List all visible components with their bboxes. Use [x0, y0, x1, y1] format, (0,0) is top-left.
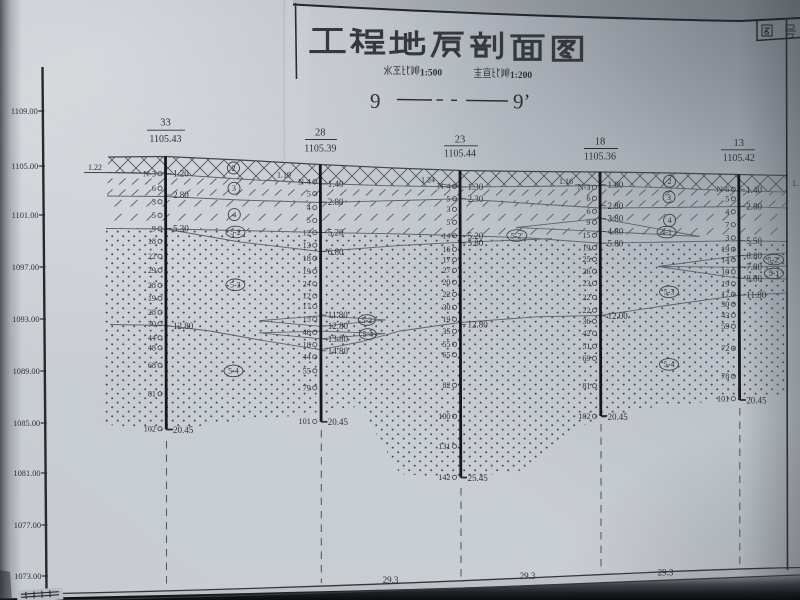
svg-text:5-3: 5-3 [664, 288, 675, 297]
svg-text:1.30: 1.30 [468, 182, 484, 192]
svg-text:28: 28 [148, 281, 156, 290]
svg-text:30: 30 [442, 303, 450, 312]
svg-text:26: 26 [582, 267, 590, 276]
svg-text:4.80: 4.80 [608, 227, 624, 237]
svg-text:9: 9 [370, 89, 381, 113]
svg-text:1.40: 1.40 [746, 185, 762, 195]
svg-text:27: 27 [442, 266, 450, 275]
svg-text:1.20: 1.20 [173, 169, 189, 179]
svg-text:5.80: 5.80 [468, 238, 484, 248]
svg-text:18: 18 [303, 340, 311, 349]
svg-text:12.00: 12.00 [608, 311, 629, 321]
svg-text:22: 22 [148, 252, 156, 261]
svg-text:78: 78 [721, 372, 729, 381]
svg-text:9’: 9’ [513, 90, 531, 114]
svg-text:4-1: 4-1 [661, 228, 672, 237]
svg-text:33: 33 [160, 118, 171, 129]
svg-text:12.80: 12.80 [468, 320, 489, 330]
svg-text:19: 19 [721, 280, 729, 289]
svg-text:1085.00: 1085.00 [13, 419, 40, 428]
svg-text:20.45: 20.45 [328, 417, 349, 427]
svg-text:12.80: 12.80 [328, 321, 349, 331]
svg-text:55: 55 [303, 367, 311, 376]
svg-text:15: 15 [303, 315, 311, 324]
svg-text:51: 51 [582, 342, 590, 351]
svg-text:13: 13 [734, 138, 745, 149]
svg-text:18: 18 [303, 254, 311, 263]
svg-text:1109.00: 1109.00 [11, 107, 38, 116]
svg-text:101: 101 [717, 394, 729, 403]
svg-text:12: 12 [303, 292, 311, 301]
svg-text:1105.43: 1105.43 [149, 134, 181, 145]
svg-text:1.: 1. [792, 179, 798, 188]
svg-text:5: 5 [446, 218, 450, 227]
svg-text:17: 17 [442, 256, 450, 265]
svg-text:5.50: 5.50 [746, 236, 762, 246]
svg-text:1105.36: 1105.36 [584, 152, 616, 163]
svg-text:1.22: 1.22 [88, 163, 102, 172]
svg-text:1081.00: 1081.00 [13, 469, 40, 478]
svg-text:3: 3 [232, 184, 236, 193]
svg-text:29.3: 29.3 [383, 575, 399, 585]
svg-text:1.19: 1.19 [277, 171, 291, 180]
svg-text:1.16: 1.16 [559, 177, 573, 186]
svg-text:2.80: 2.80 [173, 190, 189, 200]
svg-text:5-2': 5-2' [511, 231, 524, 240]
svg-text:5.20: 5.20 [328, 228, 344, 238]
svg-text:5: 5 [307, 216, 311, 225]
svg-text:1089.00: 1089.00 [13, 367, 40, 376]
svg-text:15: 15 [582, 231, 590, 240]
svg-text:3: 3 [725, 234, 729, 243]
svg-text:2: 2 [668, 177, 672, 186]
svg-text:79: 79 [303, 384, 311, 393]
svg-text:1.00: 1.00 [608, 180, 624, 190]
svg-text:19: 19 [582, 244, 590, 253]
svg-text:18: 18 [148, 237, 156, 246]
svg-text:18: 18 [595, 137, 606, 148]
svg-text:30: 30 [721, 300, 729, 309]
svg-text:5-4: 5-4 [664, 360, 675, 369]
svg-text:1:200: 1:200 [510, 71, 532, 81]
svg-text:19: 19 [303, 267, 311, 276]
svg-text:36: 36 [582, 317, 590, 326]
svg-text:25: 25 [582, 255, 590, 264]
svg-text:19: 19 [721, 245, 729, 254]
svg-text:2.80: 2.80 [328, 197, 344, 207]
svg-text:19: 19 [442, 315, 450, 324]
svg-text:3: 3 [667, 193, 671, 202]
svg-text:2.80: 2.80 [608, 201, 624, 211]
svg-text:5-2': 5-2' [768, 255, 781, 264]
svg-text:1101.00: 1101.00 [12, 211, 39, 220]
svg-text:2: 2 [232, 164, 236, 173]
svg-text:5-4: 5-4 [228, 367, 239, 376]
svg-text:5.80: 5.80 [608, 238, 624, 248]
svg-text:6.80: 6.80 [328, 247, 344, 257]
svg-text:44: 44 [148, 334, 156, 343]
svg-text:43: 43 [721, 311, 729, 320]
svg-text:5: 5 [152, 211, 156, 220]
svg-text:1.40: 1.40 [328, 179, 344, 189]
svg-text:42: 42 [582, 329, 590, 338]
svg-text:3.80: 3.80 [608, 214, 624, 224]
svg-text:13.80: 13.80 [328, 334, 349, 344]
svg-text:20.45: 20.45 [746, 396, 767, 406]
svg-text:20.45: 20.45 [608, 412, 629, 422]
svg-text:6: 6 [152, 184, 156, 193]
svg-text:5: 5 [725, 195, 729, 204]
svg-text:6: 6 [586, 207, 590, 216]
svg-text:22: 22 [582, 293, 590, 302]
svg-text:11.80: 11.80 [746, 290, 766, 300]
svg-text:72: 72 [721, 344, 729, 353]
svg-text:3: 3 [152, 198, 156, 207]
svg-text:1105.00: 1105.00 [11, 162, 38, 171]
svg-text:100: 100 [438, 412, 450, 421]
svg-text:6: 6 [586, 194, 590, 203]
svg-text:16: 16 [442, 245, 450, 254]
svg-text:65: 65 [442, 351, 450, 360]
svg-text:1105.44: 1105.44 [444, 149, 476, 160]
svg-text:5-3: 5-3 [230, 281, 241, 290]
svg-text:1077.00: 1077.00 [14, 521, 41, 530]
svg-text:102: 102 [144, 425, 156, 434]
svg-text:17: 17 [303, 302, 311, 311]
svg-text:25.45: 25.45 [468, 473, 489, 483]
svg-text:23: 23 [455, 135, 466, 146]
svg-text:1073.00: 1073.00 [14, 572, 41, 581]
svg-text:29.3: 29.3 [658, 568, 674, 578]
svg-text:20.45: 20.45 [173, 425, 194, 435]
svg-text:1105.39: 1105.39 [304, 144, 336, 155]
svg-text:81: 81 [148, 390, 156, 399]
svg-text:5.30: 5.30 [173, 224, 189, 234]
svg-text:9: 9 [152, 225, 156, 234]
svg-text:101: 101 [299, 417, 311, 426]
svg-text:8.80: 8.80 [746, 273, 762, 283]
svg-text:4: 4 [725, 208, 729, 217]
svg-text:59: 59 [721, 322, 729, 331]
svg-text:5-4: 5-4 [362, 330, 373, 339]
svg-text:28: 28 [315, 128, 326, 139]
svg-text:4: 4 [668, 216, 672, 225]
svg-text:1097.00: 1097.00 [12, 263, 39, 272]
svg-text:17: 17 [721, 290, 729, 299]
svg-text:82: 82 [442, 381, 450, 390]
svg-text:10: 10 [721, 268, 729, 277]
svg-text:11.80: 11.80 [328, 310, 348, 320]
svg-text:131: 131 [438, 442, 450, 451]
svg-text:1105.42: 1105.42 [723, 153, 755, 164]
svg-text:142: 142 [438, 473, 450, 482]
svg-text:14: 14 [442, 231, 450, 240]
svg-text:68: 68 [148, 361, 156, 370]
svg-text:7: 7 [725, 220, 729, 229]
svg-text:6.80: 6.80 [746, 251, 762, 261]
svg-text:N-4: N-4 [438, 182, 451, 191]
svg-text:14.80: 14.80 [328, 346, 349, 356]
svg-text:9: 9 [586, 218, 590, 227]
svg-text:35: 35 [442, 327, 450, 336]
svg-text:14: 14 [721, 256, 729, 265]
svg-text:N-4: N-4 [298, 178, 311, 187]
svg-text:5-1: 5-1 [769, 269, 780, 278]
svg-text:N-6: N-6 [717, 185, 730, 194]
svg-text:1.24: 1.24 [421, 176, 435, 185]
svg-text:29: 29 [148, 266, 156, 275]
svg-text:29.3: 29.3 [520, 571, 536, 581]
svg-text:19: 19 [148, 294, 156, 303]
svg-text:5: 5 [446, 195, 450, 204]
svg-text:12.80: 12.80 [173, 321, 194, 331]
svg-text:23: 23 [582, 279, 590, 288]
svg-text:44: 44 [303, 353, 311, 362]
svg-text:5-2: 5-2 [230, 228, 241, 237]
svg-text:22: 22 [582, 306, 590, 315]
svg-text:2.30: 2.30 [468, 194, 484, 204]
svg-text:22: 22 [442, 290, 450, 299]
svg-text:24: 24 [303, 280, 311, 289]
svg-text:1:500: 1:500 [420, 69, 442, 79]
svg-text:N-3: N-3 [143, 170, 156, 179]
svg-text:20: 20 [442, 278, 450, 287]
svg-text:48: 48 [303, 328, 311, 337]
svg-text:28: 28 [148, 308, 156, 317]
svg-text:3: 3 [446, 205, 450, 214]
svg-text:55: 55 [442, 340, 450, 349]
svg-text:48: 48 [148, 344, 156, 353]
svg-text:30: 30 [148, 320, 156, 329]
svg-text:13: 13 [303, 241, 311, 250]
svg-text:102: 102 [578, 412, 590, 421]
svg-text:5-2: 5-2 [361, 316, 372, 325]
svg-text:2.80: 2.80 [746, 201, 762, 211]
svg-text:4: 4 [307, 203, 311, 212]
svg-text:1093.00: 1093.00 [12, 315, 39, 324]
svg-text:5: 5 [307, 189, 311, 198]
svg-text:4: 4 [232, 210, 236, 219]
svg-text:7.80: 7.80 [746, 262, 762, 272]
svg-text:69: 69 [582, 354, 590, 363]
svg-text:N-3: N-3 [578, 183, 591, 192]
svg-text:81: 81 [582, 382, 590, 391]
svg-text:12: 12 [303, 228, 311, 237]
